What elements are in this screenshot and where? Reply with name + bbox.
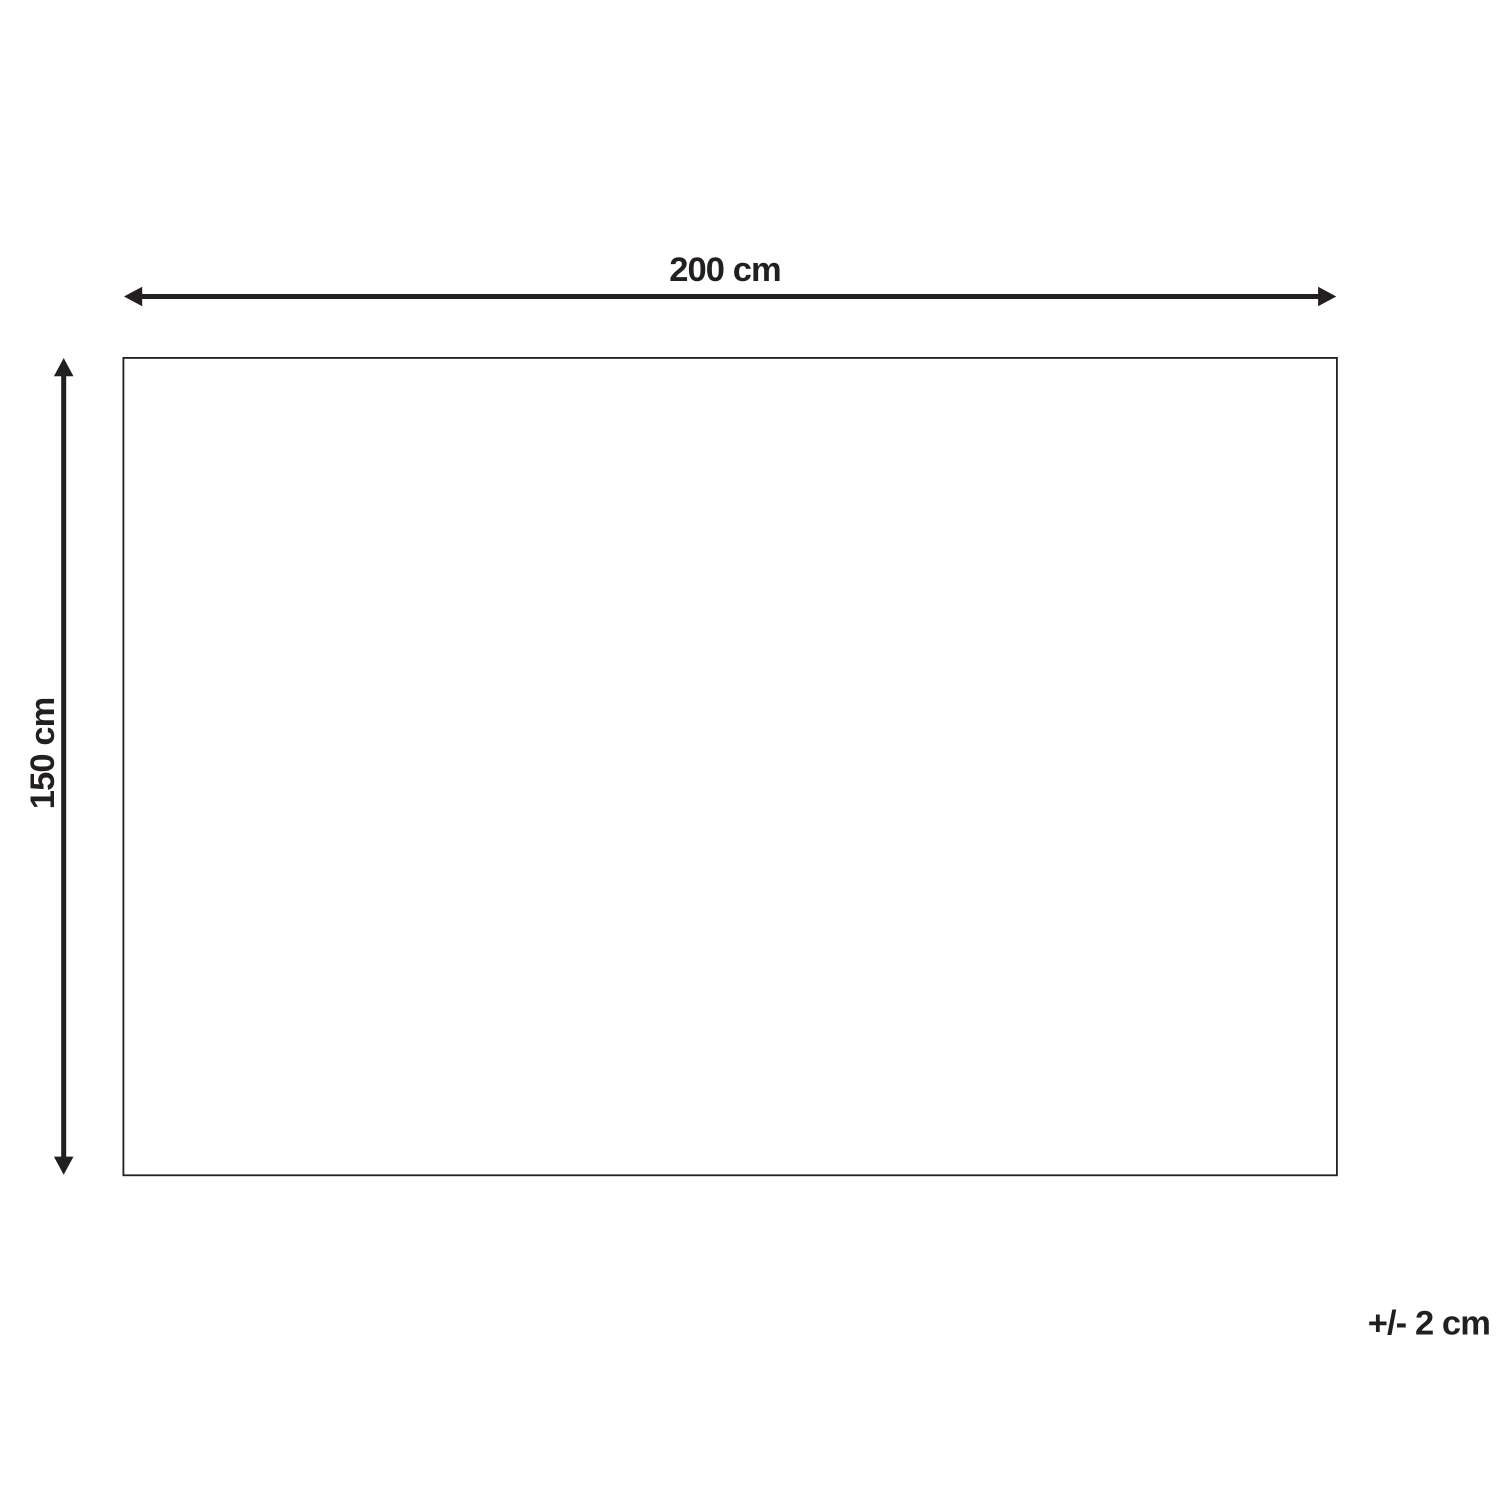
svg-text:150 cm: 150 cm <box>24 698 62 810</box>
svg-text:200 cm: 200 cm <box>669 251 781 289</box>
svg-text:+/- 2 cm: +/- 2 cm <box>1368 1304 1490 1342</box>
